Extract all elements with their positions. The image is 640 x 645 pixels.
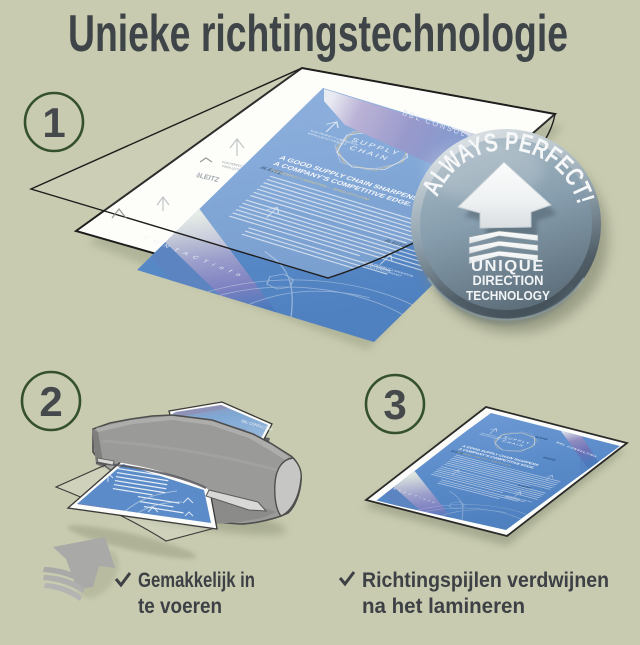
svg-text:TECHNOLOGY: TECHNOLOGY (466, 288, 550, 303)
svg-text:na het lamineren: na het lamineren (362, 594, 525, 618)
svg-text:Unieke richtingstechnologie: Unieke richtingstechnologie (68, 5, 568, 63)
svg-text:3: 3 (383, 381, 406, 428)
svg-text:Gemakkelijk in: Gemakkelijk in (138, 568, 255, 592)
svg-text:DIRECTION: DIRECTION (473, 273, 544, 288)
svg-text:Richtingspijlen verdwijnen: Richtingspijlen verdwijnen (362, 568, 609, 592)
svg-text:1: 1 (42, 99, 65, 146)
svg-text:2: 2 (39, 378, 62, 425)
svg-text:te voeren: te voeren (138, 594, 222, 618)
